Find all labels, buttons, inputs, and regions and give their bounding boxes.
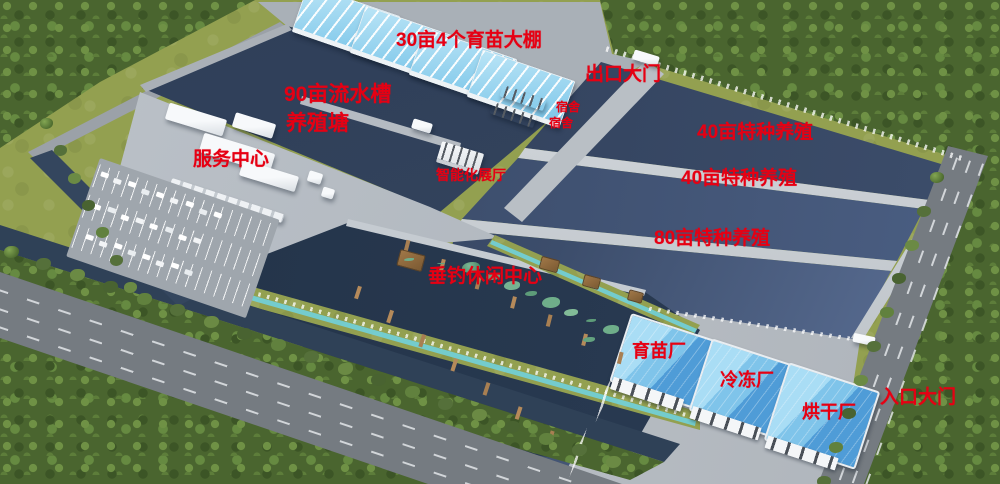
label-freezing-plant: 冷冻厂 [720,371,774,389]
label-dorm-1: 宿舍 [556,101,580,113]
label-raceway-line1: 90亩流水槽 [284,84,391,105]
label-drying-plant: 烘干厂 [802,403,856,421]
label-raceway-line2: 养殖塘 [286,113,349,134]
label-pond-40-2: 40亩特种养殖 [681,169,797,188]
label-entrance-gate: 入口大门 [880,388,956,407]
aerial-site-render: 30亩4个育苗大棚 出口大门 90亩流水槽 养殖塘 服务中心 宿舍 宿舍 智能化… [0,0,1000,484]
label-fishing-center: 垂钓休闲中心 [428,267,542,286]
label-exit-gate: 出口大门 [585,65,661,84]
label-pond-80: 80亩特种养殖 [654,229,770,248]
label-nursery-plant: 育苗厂 [632,342,686,360]
label-dorm-2: 宿舍 [549,117,573,129]
label-service-center: 服务中心 [193,150,269,169]
label-pond-40-1: 40亩特种养殖 [697,123,813,142]
label-smart-expo: 智能化展厅 [436,168,506,182]
label-greenhouses: 30亩4个育苗大棚 [396,31,542,50]
